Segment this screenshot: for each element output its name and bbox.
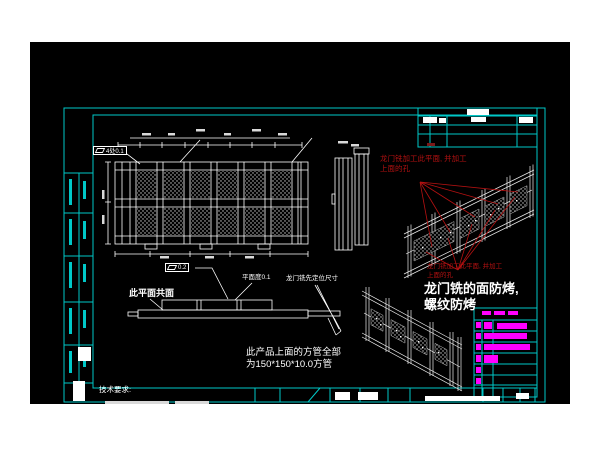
plan-view-hatch-panels [137, 171, 291, 235]
tube-note-line: 为150*150*10.0方管 [246, 359, 341, 371]
flatness-symbol-icon [95, 148, 105, 153]
tech-req-illegible-text [175, 401, 209, 404]
feature-control-frame-flatness-4x: 4处0.1 [93, 146, 127, 155]
milling-note-line: 龙门铣的面防烤, [424, 281, 519, 297]
fcf-value: 4处0.1 [106, 146, 124, 155]
gantry-mill-dim-label: 龙门铣先定位尺寸 [286, 275, 338, 282]
fcf-value: 0.2 [178, 265, 186, 271]
process-table-magenta-bars [476, 311, 530, 384]
red-note-line: 龙门铣加工此平面, 并加工 [380, 154, 467, 164]
square-tube-note: 此产品上面的方管全部 为150*150*10.0方管 [246, 347, 341, 370]
tech-req-illegible-text [105, 401, 169, 404]
milling-note-line: 螺纹防烤 [424, 297, 519, 313]
red-machining-note-middle: 龙门铣加工此平面, 并加工 上面的孔 [427, 262, 502, 280]
feature-control-frame-flatness-02: 0.2 [165, 263, 189, 272]
section-dim-text-marks [338, 141, 359, 147]
flatness-note-label: 平面度0.1 [242, 274, 271, 281]
page: { "drawing": { "background": "#000000", … [0, 0, 600, 450]
technical-requirements-label: 技术要求: [99, 386, 131, 395]
red-machining-note-top: 龙门铣加工此平面, 并加工 上面的孔 [380, 154, 467, 174]
red-note-line: 上面的孔 [380, 164, 467, 174]
red-note-line: 龙门铣加工此平面, 并加工 [427, 262, 502, 271]
tube-note-line: 此产品上面的方管全部 [246, 347, 341, 359]
revision-strip-text-marks [69, 179, 86, 373]
cad-drawing-canvas: 4处0.1 0.2 此平面共面 平面度0.1 龙门铣先定位尺寸 龙门铣加工此平面… [30, 42, 570, 404]
red-note-line: 上面的孔 [427, 271, 502, 280]
flatness-symbol-icon [167, 265, 177, 270]
isometric-view-top [404, 165, 534, 279]
coplanar-plane-label: 此平面共面 [129, 288, 174, 298]
section-view [332, 148, 369, 250]
titleblock-red-mark [427, 143, 435, 146]
milling-surface-note: 龙门铣的面防烤, 螺纹防烤 [424, 281, 519, 313]
